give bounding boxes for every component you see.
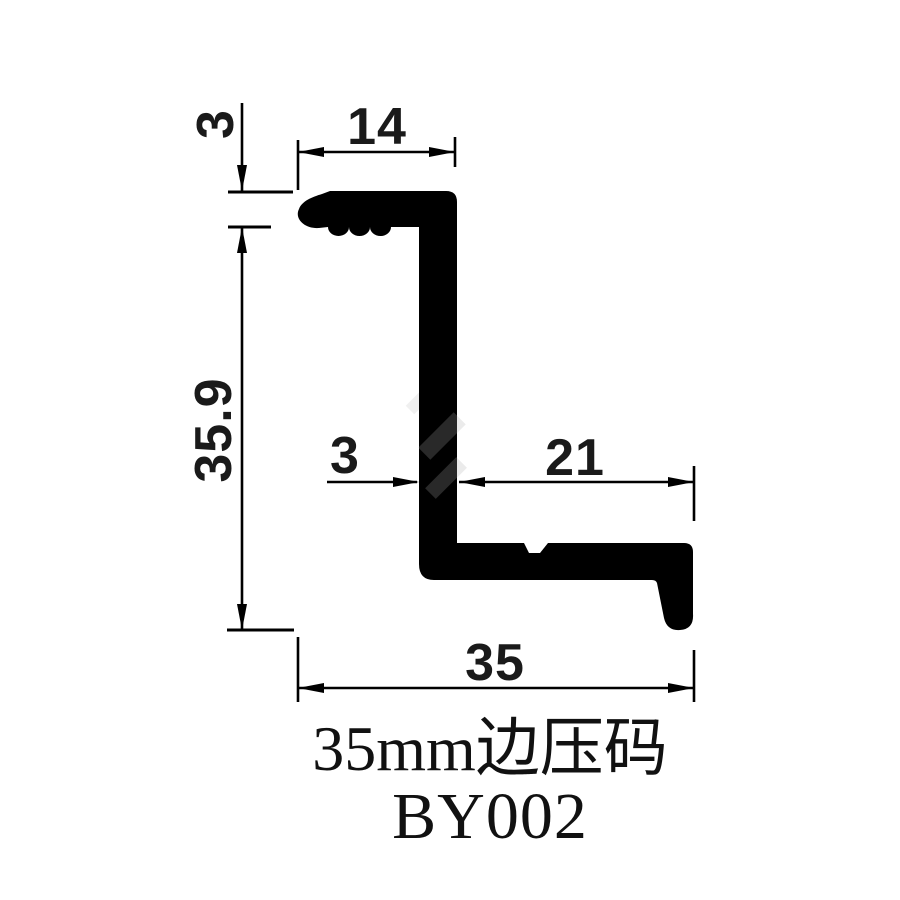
- caption-title: 35mm边压码: [312, 717, 668, 781]
- dimension-lines: [242, 103, 694, 688]
- profile-shape: [298, 191, 693, 630]
- dim-label-height: 35.9: [188, 377, 240, 482]
- caption-model-code: BY002: [392, 784, 588, 850]
- arrowheads: [237, 147, 694, 693]
- dim-label-top-width: 14: [347, 101, 407, 153]
- dim-label-bottom-length: 21: [545, 432, 605, 484]
- dim-label-top-thickness: 3: [190, 109, 242, 139]
- dim-label-web-thickness: 3: [330, 430, 360, 482]
- drawing-canvas: 3 14 35.9 3 21 35 35mm边压码 BY002: [0, 0, 900, 900]
- dim-label-overall-width: 35: [465, 637, 525, 689]
